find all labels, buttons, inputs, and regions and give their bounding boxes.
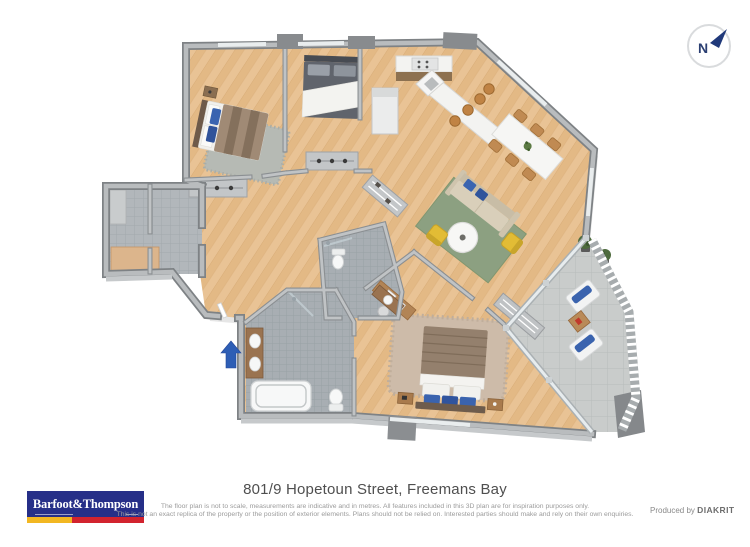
bedroom-2-furniture [302,55,360,119]
disclaimer-text: The floor plan is not to scale, measurem… [0,503,750,519]
disclaimer-line-2: This is not an exact replica of the prop… [0,511,750,519]
disclaimer-line-1: The floor plan is not to scale, measurem… [0,503,750,511]
compass-icon: N [688,25,730,67]
property-address-title: 801/9 Hopetoun Street, Freemans Bay [0,481,750,498]
floor-plan-svg: N [0,0,750,547]
produced-by-label: Produced by [650,506,695,515]
produced-by-credit: Produced by DIAKRIT [650,505,734,515]
producer-name: DIAKRIT [697,505,734,515]
master-bedroom-furniture [387,314,509,415]
compass-label: N [698,40,708,56]
